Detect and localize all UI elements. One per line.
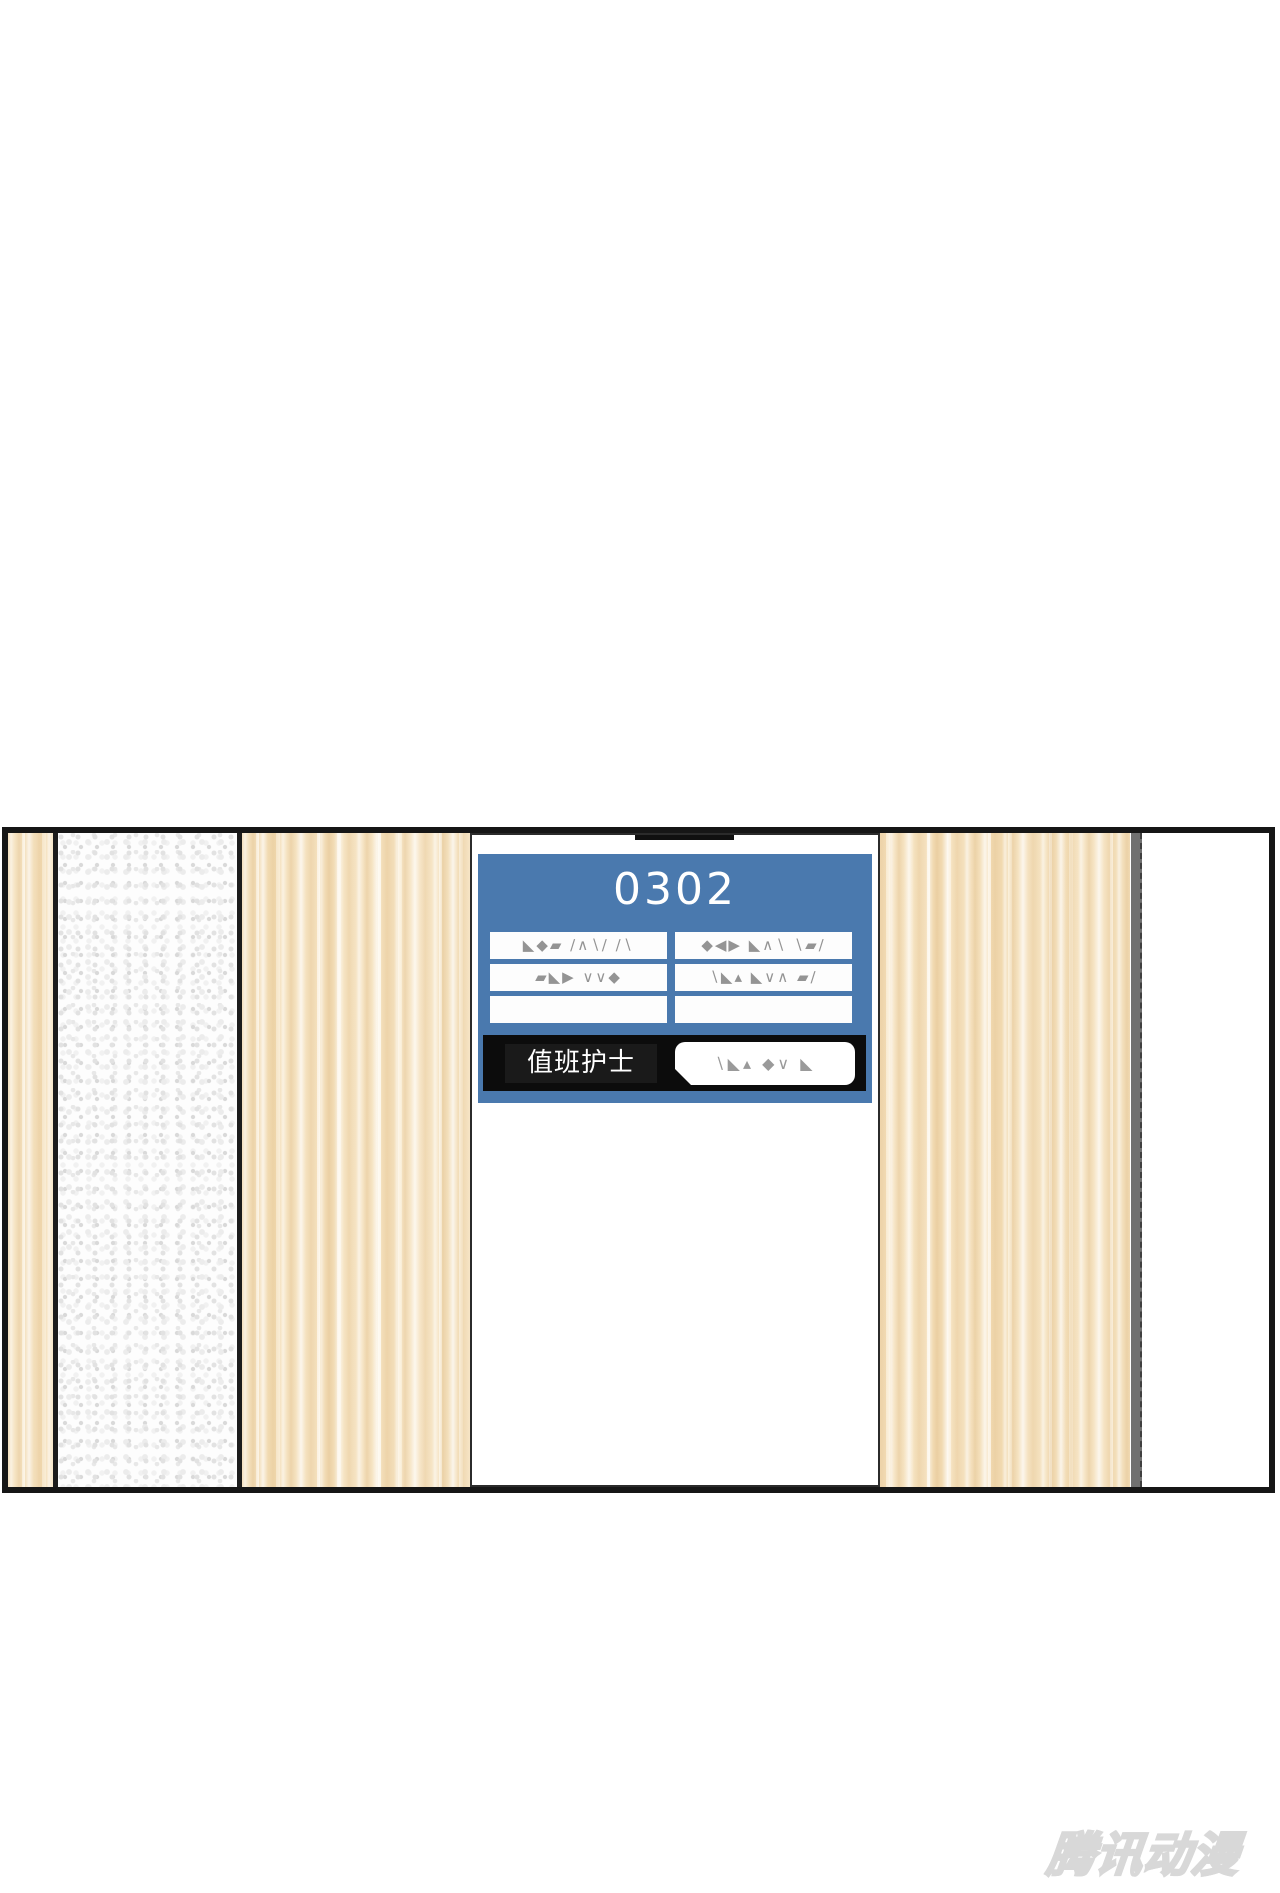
- sign-info-box-empty: [675, 996, 852, 1023]
- sign-top-notch: [635, 835, 734, 840]
- comic-page: 0302 ◣◆▰ ∕∧∖∕ ∕∖ ◆◀▶ ◣∧∖ ∖▰∕ ▰◣▶ ∨∨◆ ∖◣▴…: [0, 0, 1280, 1893]
- white-wall-right: [1142, 833, 1269, 1487]
- room-number: 0302: [478, 868, 872, 912]
- sign-blue-panel: 0302 ◣◆▰ ∕∧∖∕ ∕∖ ◆◀▶ ◣∧∖ ∖▰∕ ▰◣▶ ∨∨◆ ∖◣▴…: [478, 854, 872, 1103]
- duty-label-box: 值班护士: [505, 1044, 657, 1083]
- duty-nurse-name-scribble: ∖◣▴ ◆∨ ◣: [714, 1054, 815, 1073]
- duty-nurse-label: 值班护士: [527, 1044, 635, 1083]
- sign-info-box-empty: [490, 996, 667, 1023]
- tencent-comics-watermark: 腾讯动漫: [1044, 1816, 1243, 1885]
- room-sign: 0302 ◣◆▰ ∕∧∖∕ ∕∖ ◆◀▶ ◣∧∖ ∖▰∕ ▰◣▶ ∨∨◆ ∖◣▴…: [470, 833, 880, 1487]
- sign-info-box: ▰◣▶ ∨∨◆: [490, 964, 667, 991]
- duty-nurse-bar: 值班护士 ∖◣▴ ◆∨ ◣: [483, 1035, 866, 1091]
- sign-info-box: ◣◆▰ ∕∧∖∕ ∕∖: [490, 932, 667, 959]
- speckled-wall-column: [58, 833, 237, 1487]
- wood-wall-left-strip: [8, 833, 53, 1487]
- door-frame-bar: [1131, 833, 1142, 1487]
- sign-info-box: ∖◣▴ ◣∨∧ ▰∕: [675, 964, 852, 991]
- hallway-panel: 0302 ◣◆▰ ∕∧∖∕ ∕∖ ◆◀▶ ◣∧∖ ∖▰∕ ▰◣▶ ∨∨◆ ∖◣▴…: [2, 827, 1275, 1493]
- sign-info-box: ◆◀▶ ◣∧∖ ∖▰∕: [675, 932, 852, 959]
- name-plate-corner-cut: [675, 1069, 691, 1085]
- duty-nurse-name-plate: ∖◣▴ ◆∨ ◣: [675, 1042, 855, 1085]
